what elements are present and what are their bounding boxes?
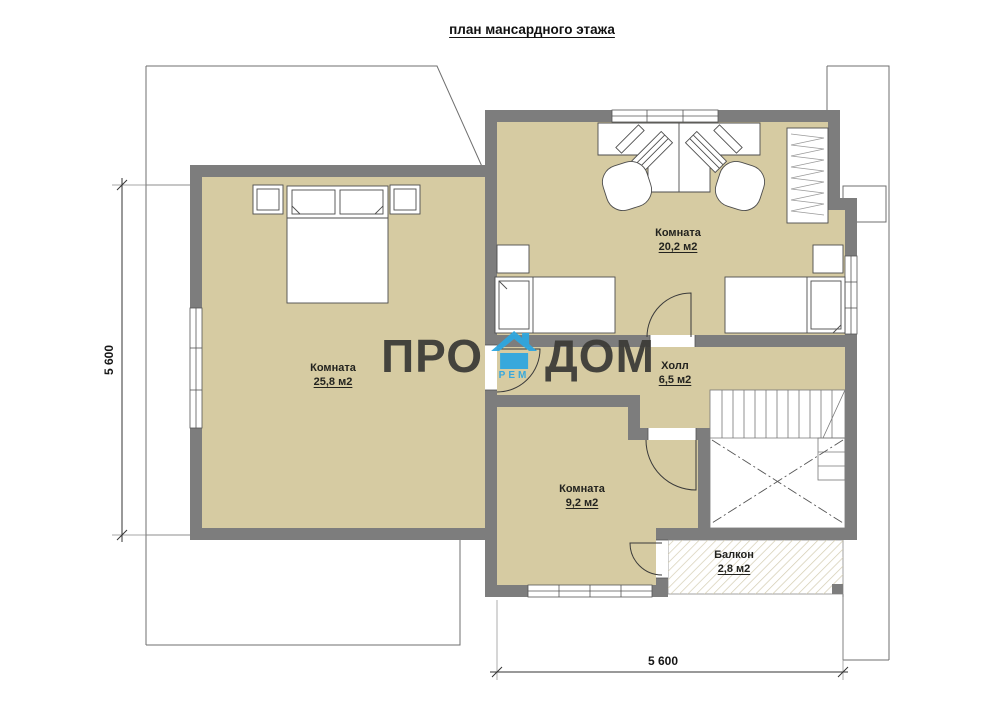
floorplan-page: план мансардного этажа Комната 25,8 м2 К… [0, 0, 1000, 708]
wall-right-lower [845, 198, 857, 540]
logo-subtext: РЕМ [499, 370, 530, 381]
room-label-bedroom-large: Комната 25,8 м2 [310, 361, 356, 389]
wall-under-stairs [656, 528, 857, 540]
wall-right-upper [828, 110, 840, 210]
dimension-bottom-label: 5 600 [648, 654, 678, 668]
room-name: Холл [661, 360, 689, 372]
stairs [710, 390, 845, 528]
wall-top-left [190, 165, 497, 177]
room-label-bedroom-top: Комната 20,2 м2 [655, 226, 701, 254]
single-bed [725, 277, 845, 333]
dimension-left-line [112, 178, 190, 542]
logo-text-dom: ДОМ [545, 333, 655, 379]
wall-stairs-left [698, 428, 710, 540]
room-area: 20,2 м2 [655, 240, 701, 254]
logo-text-pro: ПРО [381, 333, 483, 379]
nightstand [497, 245, 529, 273]
nightstand [390, 185, 420, 214]
pillow [340, 190, 383, 214]
logo: ПРО РЕМ ДОМ [381, 331, 655, 381]
logo-mid: РЕМ [491, 331, 537, 381]
room-label-bedroom-small: Комната 9,2 м2 [559, 482, 605, 510]
house-icon [491, 331, 537, 369]
room-name: Балкон [714, 549, 754, 561]
pillow [499, 281, 529, 329]
room-area: 6,5 м2 [659, 373, 692, 387]
page-title: план мансардного этажа [449, 22, 615, 37]
balcony-deck [668, 540, 843, 594]
room-label-balcony: Балкон 2,8 м2 [714, 548, 754, 576]
room-name: Комната [310, 362, 356, 374]
room-area: 2,8 м2 [714, 562, 754, 576]
balcony-hatch [668, 540, 843, 594]
nightstand [813, 245, 843, 273]
window-top [612, 110, 718, 122]
window-bottom [528, 585, 652, 597]
room-label-hall: Холл 6,5 м2 [659, 359, 692, 387]
pillow [811, 281, 841, 329]
room-area: 9,2 м2 [559, 496, 605, 510]
wall-small-room-top [485, 395, 640, 407]
single-bed [495, 277, 615, 333]
wall-bottom-left [190, 528, 497, 540]
dimension-left-label: 5 600 [102, 345, 116, 375]
room-name: Комната [655, 227, 701, 239]
window-right [845, 256, 857, 334]
wardrobe [787, 128, 828, 223]
pillow [292, 190, 335, 214]
window-left [190, 308, 202, 428]
room-name: Комната [559, 483, 605, 495]
balcony-post [832, 584, 843, 594]
nightstand [253, 185, 283, 214]
room-area: 25,8 м2 [310, 375, 356, 389]
